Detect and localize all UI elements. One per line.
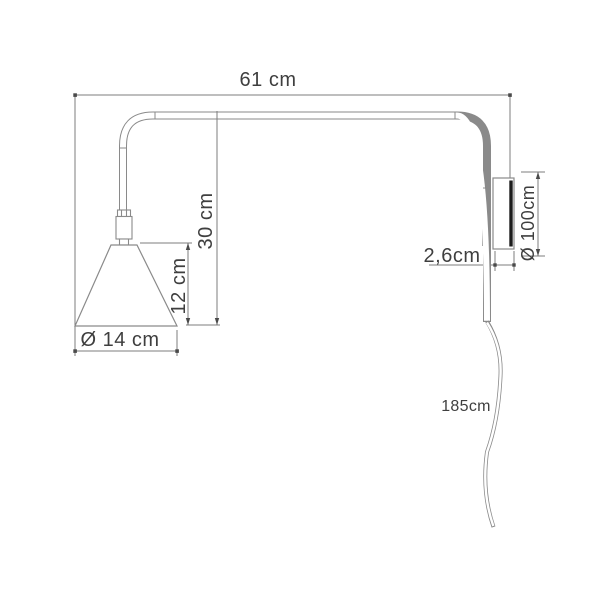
tick-61-right	[508, 93, 512, 97]
tick-26-right	[512, 263, 515, 266]
tick-26-left	[493, 263, 496, 266]
dim-label-drop-height: 30 cm	[196, 191, 216, 251]
lamp-shade	[75, 245, 177, 326]
dimension-drawing: 61 cm 30 cm 12 cm Ø 14 cm 2,6cm Ø 100cm …	[0, 0, 600, 600]
lamp-line-art	[0, 0, 600, 600]
tick-14-right	[175, 349, 179, 353]
dim-label-arm-length: 61 cm	[238, 70, 298, 90]
dim-label-cable-length: 185cm	[436, 399, 496, 415]
arrow-30-bottom	[215, 318, 219, 325]
power-cable	[485, 322, 500, 528]
tick-14-left	[73, 349, 77, 353]
dim-label-shade-diameter: Ø 14 cm	[80, 330, 160, 350]
arrow-12-top	[186, 243, 190, 250]
dim-label-plate-height: Ø 100cm	[519, 178, 537, 268]
tick-61-left	[73, 93, 77, 97]
socket-collar	[118, 210, 131, 217]
lamp-socket	[116, 210, 132, 245]
socket-nipple	[120, 239, 129, 245]
arrow-12-bottom	[186, 318, 190, 325]
dim-label-shade-height: 12 cm	[169, 256, 189, 316]
dim-label-plate-thickness: 2,6cm	[423, 246, 481, 266]
socket-body	[116, 217, 132, 240]
